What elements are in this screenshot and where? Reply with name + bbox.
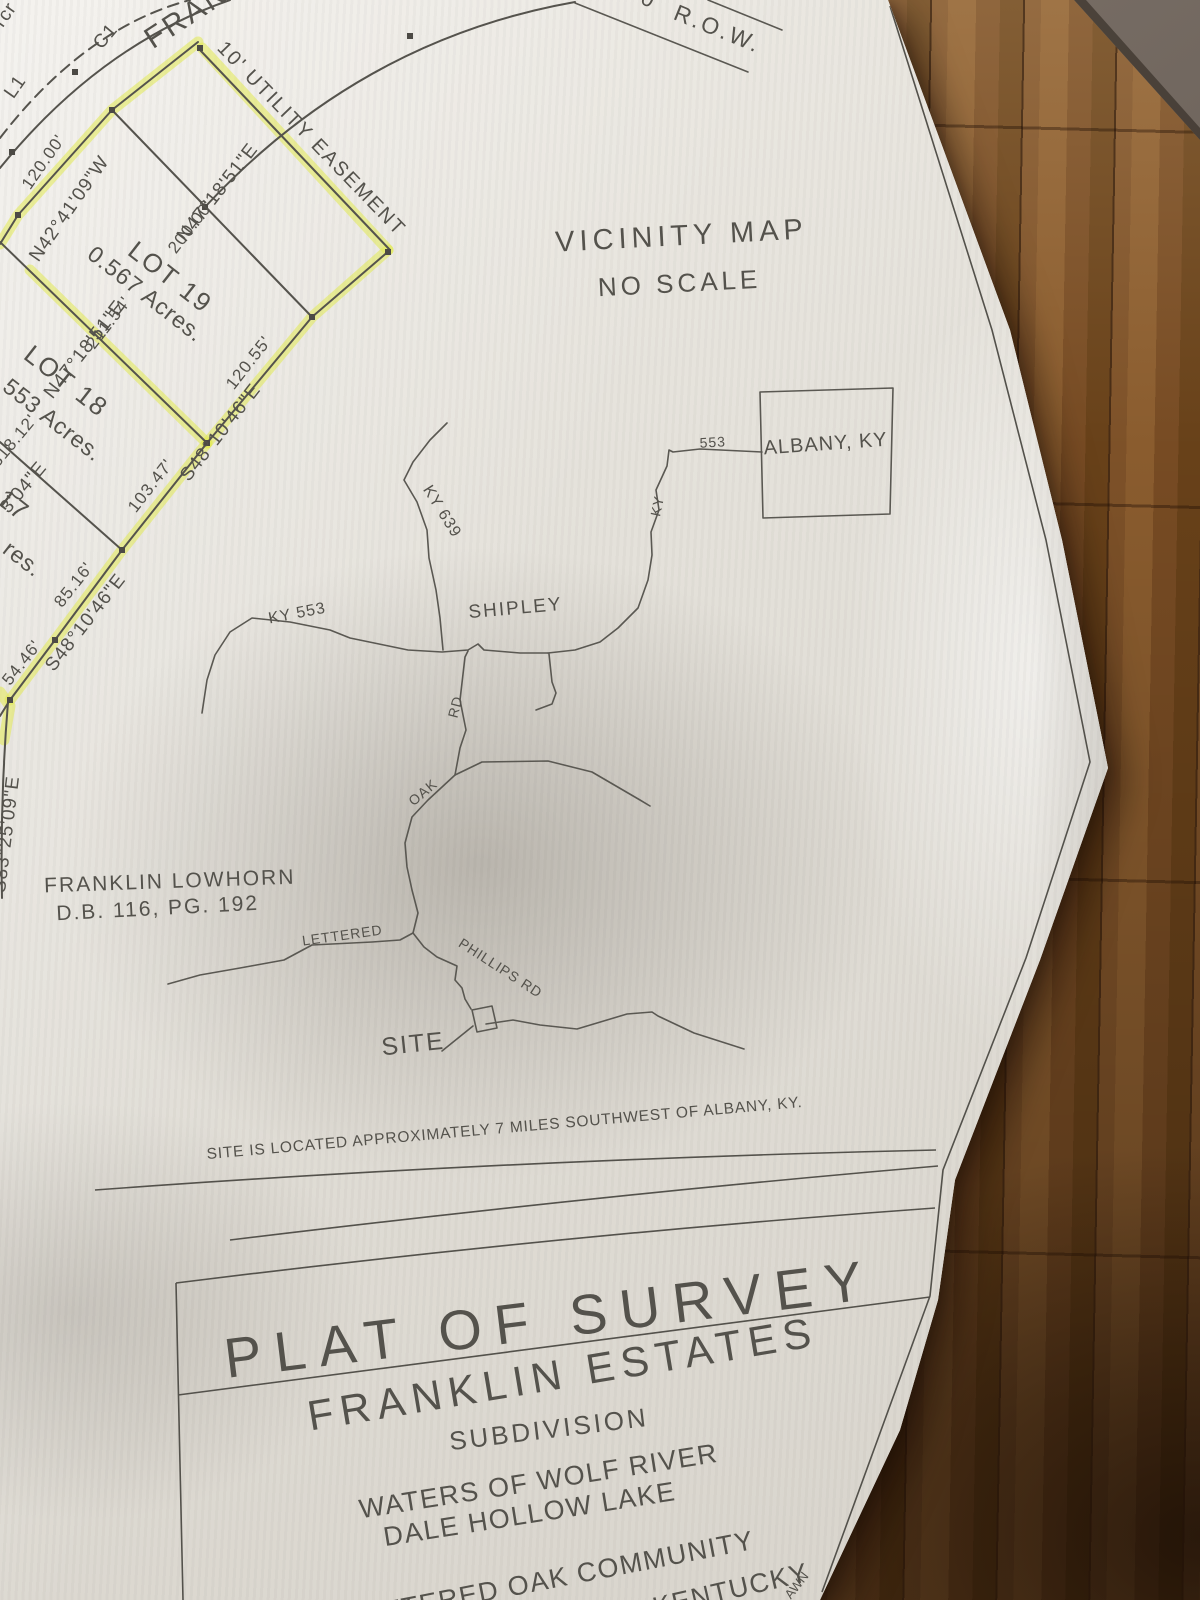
- plat-paper-sheet: rcr L1 C1 FRAN 0 R.O.W. 10' UTILITY EASE…: [0, 0, 1200, 1600]
- row-prefix-fragment: 0: [638, 0, 661, 13]
- row-label: R.O.W.: [670, 0, 765, 58]
- plat-drawing: rcr L1 C1 FRAN 0 R.O.W. 10' UTILITY EASE…: [0, 0, 1200, 1600]
- brg-s48-b: S48°10'46"E: [41, 570, 130, 676]
- vicinity-scale: NO SCALE: [597, 264, 762, 303]
- label-albany: ALBANY, KY: [763, 429, 888, 460]
- plat-label-l1: L1: [0, 71, 30, 102]
- highlight-road-frontage: [0, 42, 198, 244]
- acres-fragment: res.: [0, 535, 48, 582]
- road-stub: [536, 654, 556, 710]
- road-ky553-to-albany: [548, 449, 762, 653]
- plat-lines: [0, 0, 782, 898]
- vicinity-roads: [168, 388, 893, 1051]
- location-note: SITE IS LOCATED APPROXIMATELY 7 MILES SO…: [206, 1094, 803, 1163]
- label-site: SITE: [380, 1027, 446, 1061]
- owner-deed: D.B. 116, PG. 192: [56, 892, 260, 926]
- label-ky639: KY 639: [419, 482, 464, 540]
- photo-of-survey-plat: rcr L1 C1 FRAN 0 R.O.W. 10' UTILITY EASE…: [0, 0, 1200, 1600]
- right-border-line: [822, 6, 1090, 1592]
- dim-200: 200.00': [164, 196, 217, 257]
- brg-s83: S83°25'09"E: [0, 775, 24, 894]
- site-arrow: [442, 1026, 473, 1051]
- label-ky: KY: [647, 494, 667, 518]
- road-lettered: [168, 933, 413, 984]
- label-shipley: SHIPLEY: [468, 594, 564, 623]
- label-phillips-rd: PHILLIPS RD: [456, 935, 546, 1001]
- paper-shadow-wrap: rcr L1 C1 FRAN 0 R.O.W. 10' UTILITY EASE…: [0, 0, 1200, 1600]
- label-553: 553: [699, 433, 726, 450]
- road-phillips-lower: [486, 1012, 744, 1049]
- section-divider-lower: [230, 1166, 938, 1240]
- site-square: [472, 1006, 497, 1032]
- easement-label: 10' UTILITY EASEMENT: [213, 37, 410, 240]
- corner-fragment: rcr: [0, 0, 21, 31]
- vicinity-title: VICINITY MAP: [554, 213, 808, 258]
- road-ky553-west: [202, 618, 548, 713]
- label-oak: OAK: [405, 776, 440, 809]
- road-east-branch: [455, 761, 650, 806]
- titleblock-left-line: [176, 1283, 183, 1600]
- plat-label-c1: C1: [89, 20, 122, 54]
- road-ky639: [404, 423, 447, 650]
- label-lettered: LETTERED: [301, 921, 384, 948]
